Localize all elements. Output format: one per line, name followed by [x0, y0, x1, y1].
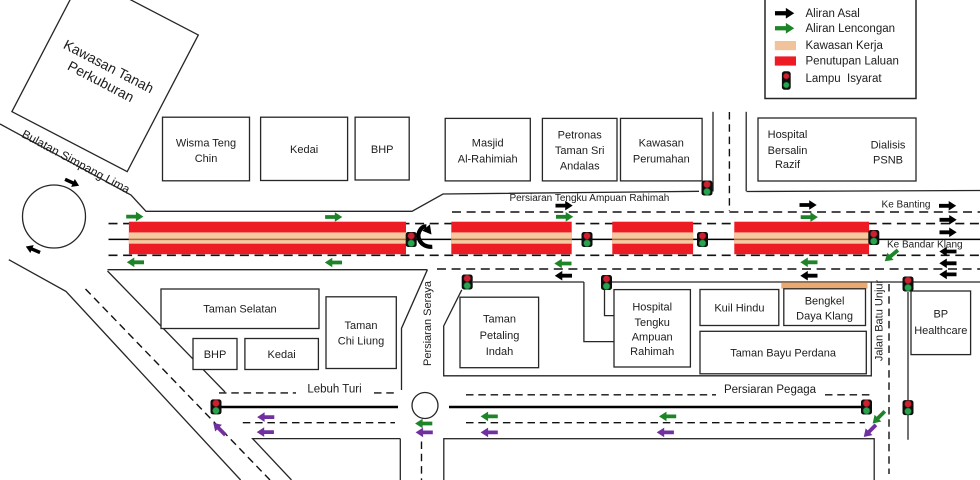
svg-text:Bengkel: Bengkel	[805, 296, 845, 308]
svg-text:Perumahan: Perumahan	[633, 154, 690, 166]
svg-text:Masjid: Masjid	[472, 138, 504, 150]
svg-text:Persiaran Seraya: Persiaran Seraya	[422, 280, 434, 366]
svg-text:Lebuh Turi: Lebuh Turi	[307, 383, 361, 395]
svg-text:Indah: Indah	[486, 346, 514, 358]
svg-text:BP: BP	[933, 309, 948, 321]
svg-text:Taman: Taman	[483, 314, 516, 326]
svg-text:Taman Sri: Taman Sri	[555, 145, 605, 157]
svg-text:Persiaran Pegaga: Persiaran Pegaga	[724, 384, 817, 396]
svg-text:Jalan Batu Unjur: Jalan Batu Unjur	[873, 280, 885, 362]
svg-text:PSNB: PSNB	[873, 155, 903, 167]
svg-text:Rahimah: Rahimah	[630, 346, 674, 358]
svg-text:Petaling: Petaling	[480, 330, 520, 342]
svg-text:Tengku: Tengku	[634, 317, 669, 329]
svg-text:BHP: BHP	[204, 349, 227, 361]
svg-text:Kawasan: Kawasan	[639, 138, 684, 150]
svg-text:Razif: Razif	[775, 159, 801, 171]
svg-text:Ampuan: Ampuan	[632, 332, 673, 344]
svg-text:Penutupan Laluan: Penutupan Laluan	[806, 56, 899, 68]
svg-text:Aliran Lencongan: Aliran Lencongan	[806, 23, 896, 35]
svg-text:Ke Banting: Ke Banting	[882, 200, 931, 211]
svg-text:Petronas: Petronas	[558, 130, 603, 142]
svg-text:Lampu Isyarat: Lampu Isyarat	[806, 73, 883, 85]
svg-text:Kedai: Kedai	[290, 144, 318, 156]
svg-text:Taman Bayu Perdana: Taman Bayu Perdana	[730, 348, 837, 360]
svg-text:Daya Klang: Daya Klang	[796, 311, 853, 323]
svg-text:Taman Selatan: Taman Selatan	[203, 304, 276, 316]
svg-text:Hospital: Hospital	[632, 302, 672, 314]
svg-text:Andalas: Andalas	[560, 161, 600, 173]
svg-text:Persiaran Tengku Ampuan Rahima: Persiaran Tengku Ampuan Rahimah	[509, 193, 669, 204]
svg-text:Healthcare: Healthcare	[914, 325, 967, 337]
svg-text:Kuil Hindu: Kuil Hindu	[714, 303, 764, 315]
svg-text:Chin: Chin	[195, 153, 218, 165]
svg-text:Kawasan Kerja: Kawasan Kerja	[806, 40, 884, 52]
svg-text:Wisma Teng: Wisma Teng	[176, 138, 236, 150]
svg-text:BHP: BHP	[371, 144, 394, 156]
svg-text:Al-Rahimiah: Al-Rahimiah	[458, 154, 518, 166]
svg-text:Ke Bandar Klang: Ke Bandar Klang	[887, 240, 963, 251]
svg-text:Taman: Taman	[344, 320, 377, 332]
svg-text:Bersalin: Bersalin	[768, 145, 808, 157]
svg-text:Chi Liung: Chi Liung	[338, 336, 384, 348]
svg-text:Hospital: Hospital	[768, 129, 808, 141]
svg-text:Kedai: Kedai	[268, 349, 296, 361]
svg-text:Dialisis: Dialisis	[871, 140, 906, 152]
svg-text:Aliran Asal: Aliran Asal	[806, 8, 860, 20]
